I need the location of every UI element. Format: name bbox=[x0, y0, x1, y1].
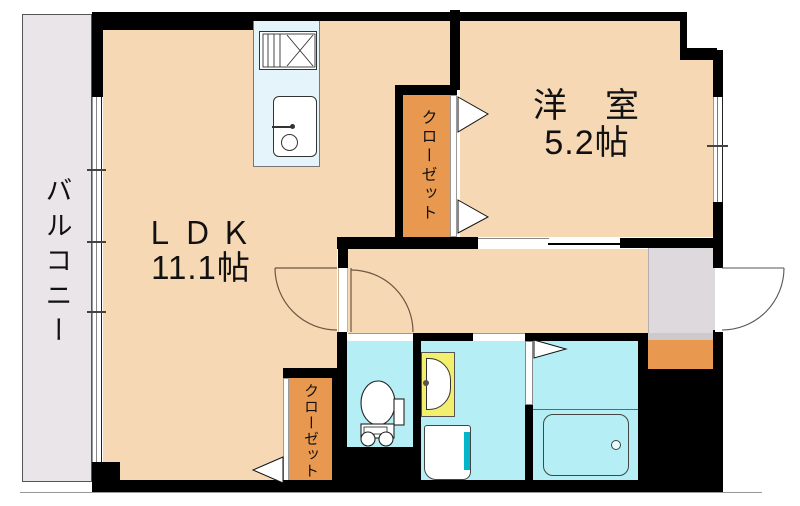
wall bbox=[680, 48, 717, 60]
wall bbox=[620, 238, 715, 248]
ldk-room bbox=[103, 90, 395, 237]
entry-door-opening bbox=[715, 268, 723, 332]
washing-machine-accent bbox=[464, 432, 470, 470]
window-tick bbox=[87, 241, 106, 243]
sink-drain-icon bbox=[281, 134, 298, 151]
ground-line bbox=[20, 492, 762, 493]
wall bbox=[413, 333, 473, 341]
wall bbox=[395, 85, 457, 95]
wall bbox=[92, 12, 253, 30]
western-room-size: 5.2帖 bbox=[497, 125, 677, 162]
window-tick bbox=[87, 169, 106, 171]
wall bbox=[535, 333, 648, 341]
wall bbox=[337, 237, 478, 249]
wall bbox=[395, 95, 403, 237]
wall bbox=[638, 341, 648, 369]
western-room-label: 洋 室 bbox=[497, 88, 677, 125]
shoe-cabinet bbox=[648, 340, 715, 369]
wall bbox=[713, 50, 723, 97]
ldk-room bbox=[103, 368, 283, 482]
hallway bbox=[348, 249, 648, 333]
bathtub-drain-icon bbox=[611, 440, 621, 450]
ldk-label-block: ＬＤＫ 11.1帖 bbox=[110, 217, 292, 286]
ldk-size: 11.1帖 bbox=[110, 250, 292, 286]
ldk-room bbox=[103, 30, 253, 90]
bathroom-folding-door bbox=[525, 341, 533, 405]
washroom-door-opening bbox=[473, 333, 525, 341]
wall bbox=[413, 340, 421, 447]
wall bbox=[338, 249, 348, 268]
window-balcony bbox=[92, 97, 103, 462]
washbasin-faucet-icon bbox=[423, 380, 429, 386]
ldk-hall-door-opening bbox=[338, 268, 348, 332]
floor-plan: バルコニー ＬＤＫ 11.1帖 洋 室 5.2帖 クローゼット クローゼット bbox=[0, 0, 800, 506]
closet-upper-label: クローゼット bbox=[403, 95, 450, 237]
closet-lower-label: クローゼット bbox=[289, 378, 332, 483]
western-room-label-block: 洋 室 5.2帖 bbox=[497, 88, 677, 161]
wall bbox=[337, 332, 347, 368]
western-room-sliding-door bbox=[478, 238, 549, 243]
toilet-room bbox=[347, 340, 413, 447]
wall bbox=[525, 405, 533, 482]
wall bbox=[253, 12, 687, 21]
wall bbox=[92, 12, 103, 97]
wall bbox=[283, 368, 347, 378]
wall bbox=[680, 21, 687, 48]
window-tick bbox=[707, 145, 728, 147]
window-east bbox=[713, 97, 723, 202]
bath-edge-line bbox=[533, 409, 638, 410]
wall bbox=[450, 10, 460, 90]
entry-area bbox=[648, 248, 715, 333]
wall bbox=[713, 330, 723, 370]
western-room bbox=[680, 60, 713, 237]
balcony-label: バルコニー bbox=[34, 158, 80, 368]
wall bbox=[525, 333, 535, 341]
wall bbox=[713, 202, 723, 268]
western-room-sliding-door bbox=[548, 243, 620, 248]
stove-icon bbox=[259, 31, 317, 70]
entry-door-arc-icon bbox=[722, 268, 784, 330]
entry-step bbox=[648, 333, 715, 340]
window-tick bbox=[87, 311, 106, 313]
wall bbox=[638, 369, 723, 492]
wall bbox=[332, 447, 421, 492]
ldk-label: ＬＤＫ bbox=[110, 217, 292, 250]
closet-upper-door bbox=[450, 95, 457, 237]
toilet-door-opening bbox=[348, 333, 413, 341]
faucet-icon bbox=[290, 124, 295, 129]
